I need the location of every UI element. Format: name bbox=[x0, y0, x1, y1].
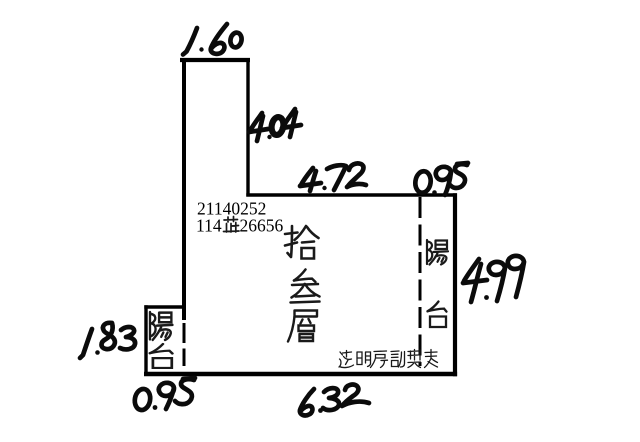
svg-text:114: 114 bbox=[196, 216, 222, 236]
svg-text:26656: 26656 bbox=[240, 216, 284, 236]
